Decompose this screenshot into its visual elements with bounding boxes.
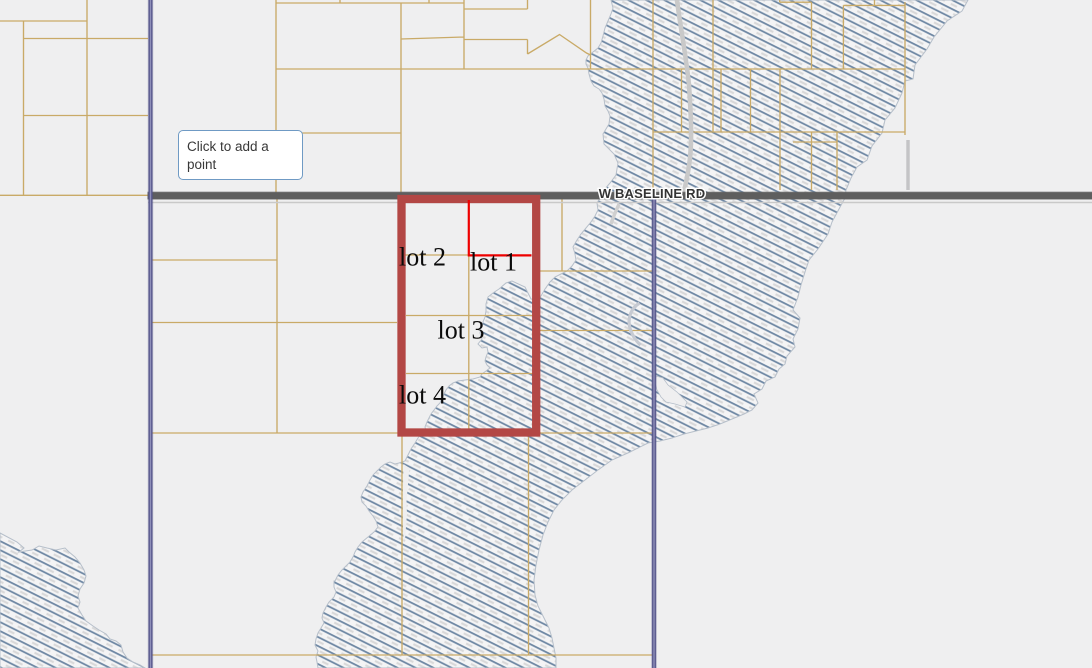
svg-text:lot 3: lot 3 (438, 316, 485, 345)
svg-text:lot 2: lot 2 (399, 243, 446, 272)
svg-text:lot 4: lot 4 (399, 381, 446, 410)
svg-text:W BASELINE RD: W BASELINE RD (599, 186, 706, 201)
svg-text:lot 1: lot 1 (470, 248, 517, 277)
